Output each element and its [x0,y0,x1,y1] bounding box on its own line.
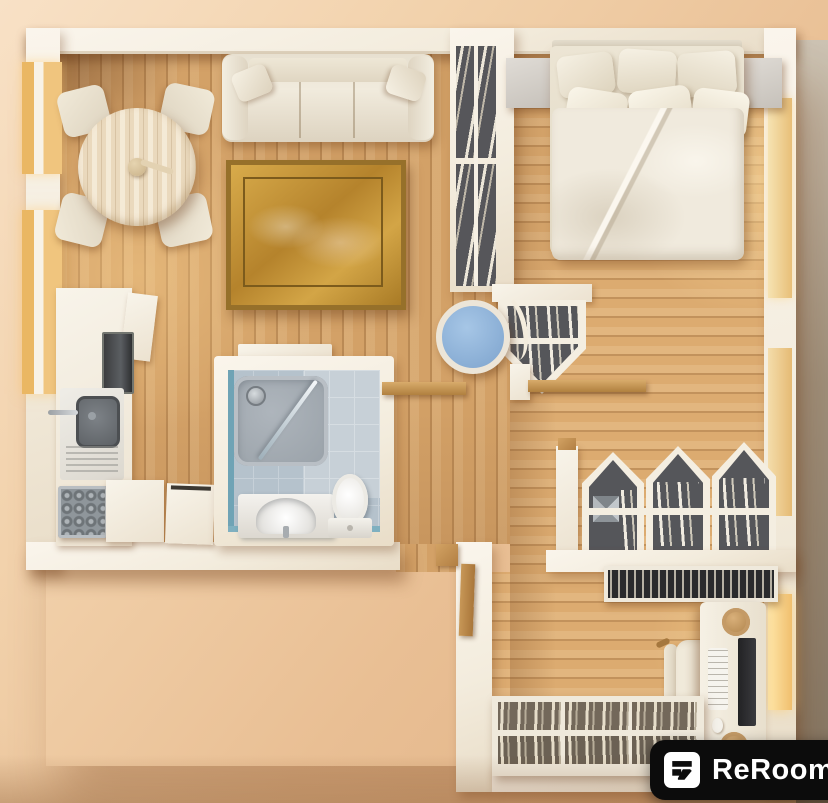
window-left-upper [22,62,62,174]
oven [102,332,134,394]
sink-faucet [48,410,78,415]
gable-shelf-house-1-books [621,490,635,550]
drainboard [66,446,118,476]
picture-canvas [243,177,383,287]
reroom-logo-icon [664,752,700,788]
washing-machine-lid-gap [171,485,211,490]
window-office-right [768,594,792,710]
dining-table [78,108,196,226]
floorplan-render: ReRoom [0,0,828,803]
nightstand-left [506,58,554,108]
ledge-post [510,364,530,400]
entry-door-leaf [459,564,476,636]
cooktop-hob [58,486,108,538]
toilet-flush-button [347,525,353,531]
wall-ledge-bedroom [528,380,646,392]
wall-divider-bookshelf [450,28,514,292]
gable-shelf-house-3-interior [719,450,769,550]
sofa-seat-cushions [249,80,407,138]
gable-shelf-rail [582,508,776,515]
picture-frame [226,160,406,310]
sink-basin [76,396,120,448]
mouse [712,718,723,733]
sofa-back-cushions [249,58,407,82]
bed [548,40,746,260]
wall-ledge-bathroom [382,382,466,395]
reroom-logo-text: ReRoom [712,754,828,787]
bathroom-walls [214,356,394,546]
gable-shelf-post-cap [558,438,576,450]
sink-faucet-head [88,412,96,420]
washing-machine [165,483,215,545]
desk-planter-top [722,608,750,636]
toilet-tank [328,518,372,538]
dishwasher [106,480,164,542]
record-shelf-upper-records [608,570,774,598]
sofa [222,54,434,142]
gable-shelf-house-1-interior [589,460,637,550]
vanity-sink [238,494,334,538]
monitor [738,638,756,726]
bookshelf-low-row-top [498,702,698,730]
kitchen-sink-panel [60,388,124,480]
bookshelf-mullion [474,46,478,286]
reroom-watermark: ReRoom [650,740,828,800]
gable-shelf-post [556,446,578,556]
shower-head [246,386,266,406]
office-desk [700,602,766,760]
keyboard [708,648,728,710]
window-right-upper [768,98,792,298]
record-shelf-upper [604,566,778,602]
vanity-faucet [283,526,289,538]
bed-duvet [552,108,744,260]
entry-door-jamb [436,544,458,566]
reroom-logo-glyph [669,757,695,783]
wall-bottom-left [26,542,400,570]
gable-shelf-house-2-interior [653,454,703,550]
background-right-shadow [796,40,828,803]
